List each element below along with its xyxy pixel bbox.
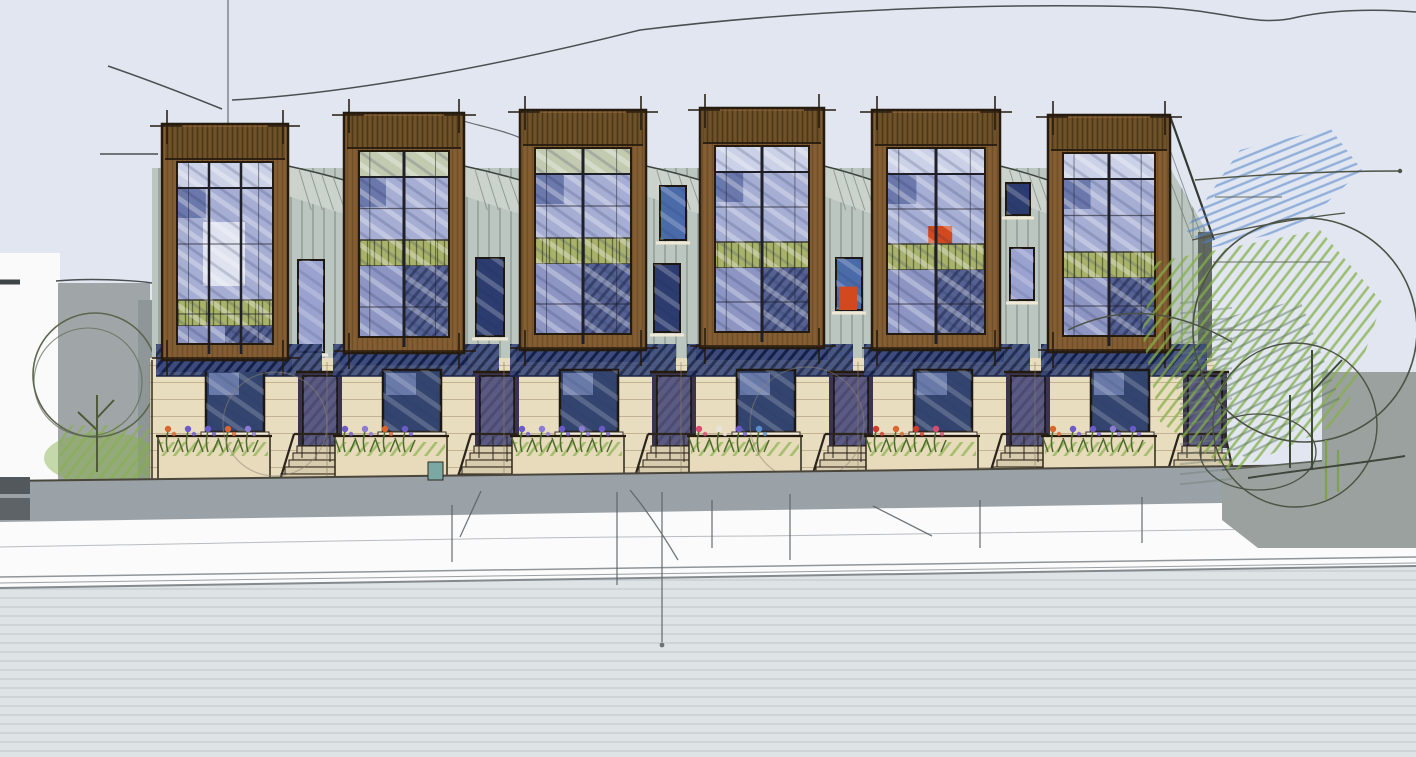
flower-bloom-small: [586, 432, 590, 436]
flower-bloom: [519, 426, 525, 432]
flower-bloom-small: [172, 432, 176, 436]
gap-window-streaks: [476, 258, 504, 336]
bay-fascia-grain: [703, 111, 821, 143]
flower-bloom-small: [920, 432, 924, 436]
flower-bloom-small: [409, 432, 413, 436]
bay-fascia-grain: [1051, 118, 1167, 150]
bay-fascia-grain: [875, 113, 997, 145]
bay-window: [688, 94, 836, 364]
streetscape: [0, 452, 1416, 757]
flower-bloom-small: [1137, 432, 1141, 436]
stoop-step: [1005, 446, 1045, 453]
flower-bloom: [559, 426, 565, 432]
curb-block-2: [0, 498, 30, 520]
architectural-sketch: [0, 0, 1416, 757]
flower-bloom: [736, 426, 742, 432]
flower-bloom-small: [526, 432, 530, 436]
flower-bloom-small: [1057, 432, 1061, 436]
ground-window-streaks: [383, 370, 441, 432]
flower-bloom: [1050, 426, 1056, 432]
bay-fascia-grain: [523, 113, 643, 145]
stoop-step: [651, 446, 691, 453]
flower-bloom: [225, 426, 231, 432]
flower-bloom-small: [212, 432, 216, 436]
ground-window-streaks: [560, 370, 618, 432]
flower-bloom-small: [1097, 432, 1101, 436]
flower-bloom-small: [723, 432, 727, 436]
ground-window-streaks: [1091, 370, 1149, 432]
flower-bloom: [579, 426, 585, 432]
bay-window: [508, 96, 658, 366]
stoop-step: [828, 446, 868, 453]
bay-fascia-grain: [165, 127, 285, 159]
flower-bloom: [342, 426, 348, 432]
ground-window-streaks: [914, 370, 972, 432]
flower-bloom: [1110, 426, 1116, 432]
flower-bloom-small: [369, 432, 373, 436]
bin: [428, 462, 443, 480]
flower-bloom: [933, 426, 939, 432]
flower-bloom-small: [252, 432, 256, 436]
flower-bloom: [873, 426, 879, 432]
stoop-step: [474, 446, 514, 453]
flower-bloom: [1130, 426, 1136, 432]
flower-bloom: [1070, 426, 1076, 432]
flower-bloom-small: [606, 432, 610, 436]
gap-window-streaks: [1010, 248, 1034, 300]
stoop-step: [1001, 453, 1049, 460]
flower-bloom: [402, 426, 408, 432]
ground-window-streaks: [206, 370, 264, 432]
flower-bloom: [756, 426, 762, 432]
left-neighbor: [0, 253, 160, 487]
flower-bloom-small: [546, 432, 550, 436]
flower-bloom-small: [940, 432, 944, 436]
gap-window-streaks: [660, 186, 686, 240]
stoop-step: [824, 453, 872, 460]
bay-window: [860, 96, 1012, 366]
door-hatching: [657, 376, 691, 446]
bay-window: [150, 110, 300, 376]
flower-bloom-small: [1077, 432, 1081, 436]
sketch-canvas: [0, 0, 1416, 757]
stoop-step: [647, 453, 695, 460]
foreground-texture: [0, 566, 1416, 757]
gap-window: [472, 258, 508, 339]
ground-window-streaks: [737, 370, 795, 432]
flower-bloom-small: [743, 432, 747, 436]
flower-bloom-small: [900, 432, 904, 436]
gap-window: [832, 258, 866, 313]
curb-block-1: [0, 477, 30, 494]
flower-bloom-small: [1117, 432, 1121, 436]
flower-bloom: [205, 426, 211, 432]
flower-bloom: [893, 426, 899, 432]
flower-bloom: [362, 426, 368, 432]
bay-window: [332, 99, 476, 369]
flower-bloom-small: [192, 432, 196, 436]
flower-bloom: [165, 426, 171, 432]
door-hatching: [1011, 376, 1045, 446]
flower-bloom-small: [566, 432, 570, 436]
gap-window: [294, 260, 328, 355]
flower-bloom: [913, 426, 919, 432]
flower-bloom-small: [232, 432, 236, 436]
flower-bloom: [185, 426, 191, 432]
drop-line-dot: [660, 643, 665, 648]
flower-bloom-small: [880, 432, 884, 436]
stoop-step: [470, 453, 518, 460]
stoop-step: [297, 446, 337, 453]
door-hatching: [303, 376, 337, 446]
flower-bloom: [382, 426, 388, 432]
gap-window-streaks: [298, 260, 324, 352]
flower-bloom-small: [349, 432, 353, 436]
flower-bloom-small: [703, 432, 707, 436]
bay-fascia-grain: [347, 116, 461, 148]
flower-bloom-small: [763, 432, 767, 436]
flower-bloom-small: [389, 432, 393, 436]
door-hatching: [480, 376, 514, 446]
flower-bloom: [245, 426, 251, 432]
flower-bloom: [716, 426, 722, 432]
gap-window-streaks: [654, 264, 680, 332]
gap-window-streaks: [1006, 183, 1030, 215]
flower-bloom: [539, 426, 545, 432]
gap-window: [1002, 183, 1034, 218]
flower-bloom: [1090, 426, 1096, 432]
gap-window-orange-pane: [839, 287, 857, 310]
line-end-dot: [1398, 169, 1402, 173]
gap-window: [650, 264, 684, 335]
flower-bloom: [696, 426, 702, 432]
flower-bloom: [599, 426, 605, 432]
gap-window: [656, 186, 690, 243]
gap-window: [1006, 248, 1038, 303]
